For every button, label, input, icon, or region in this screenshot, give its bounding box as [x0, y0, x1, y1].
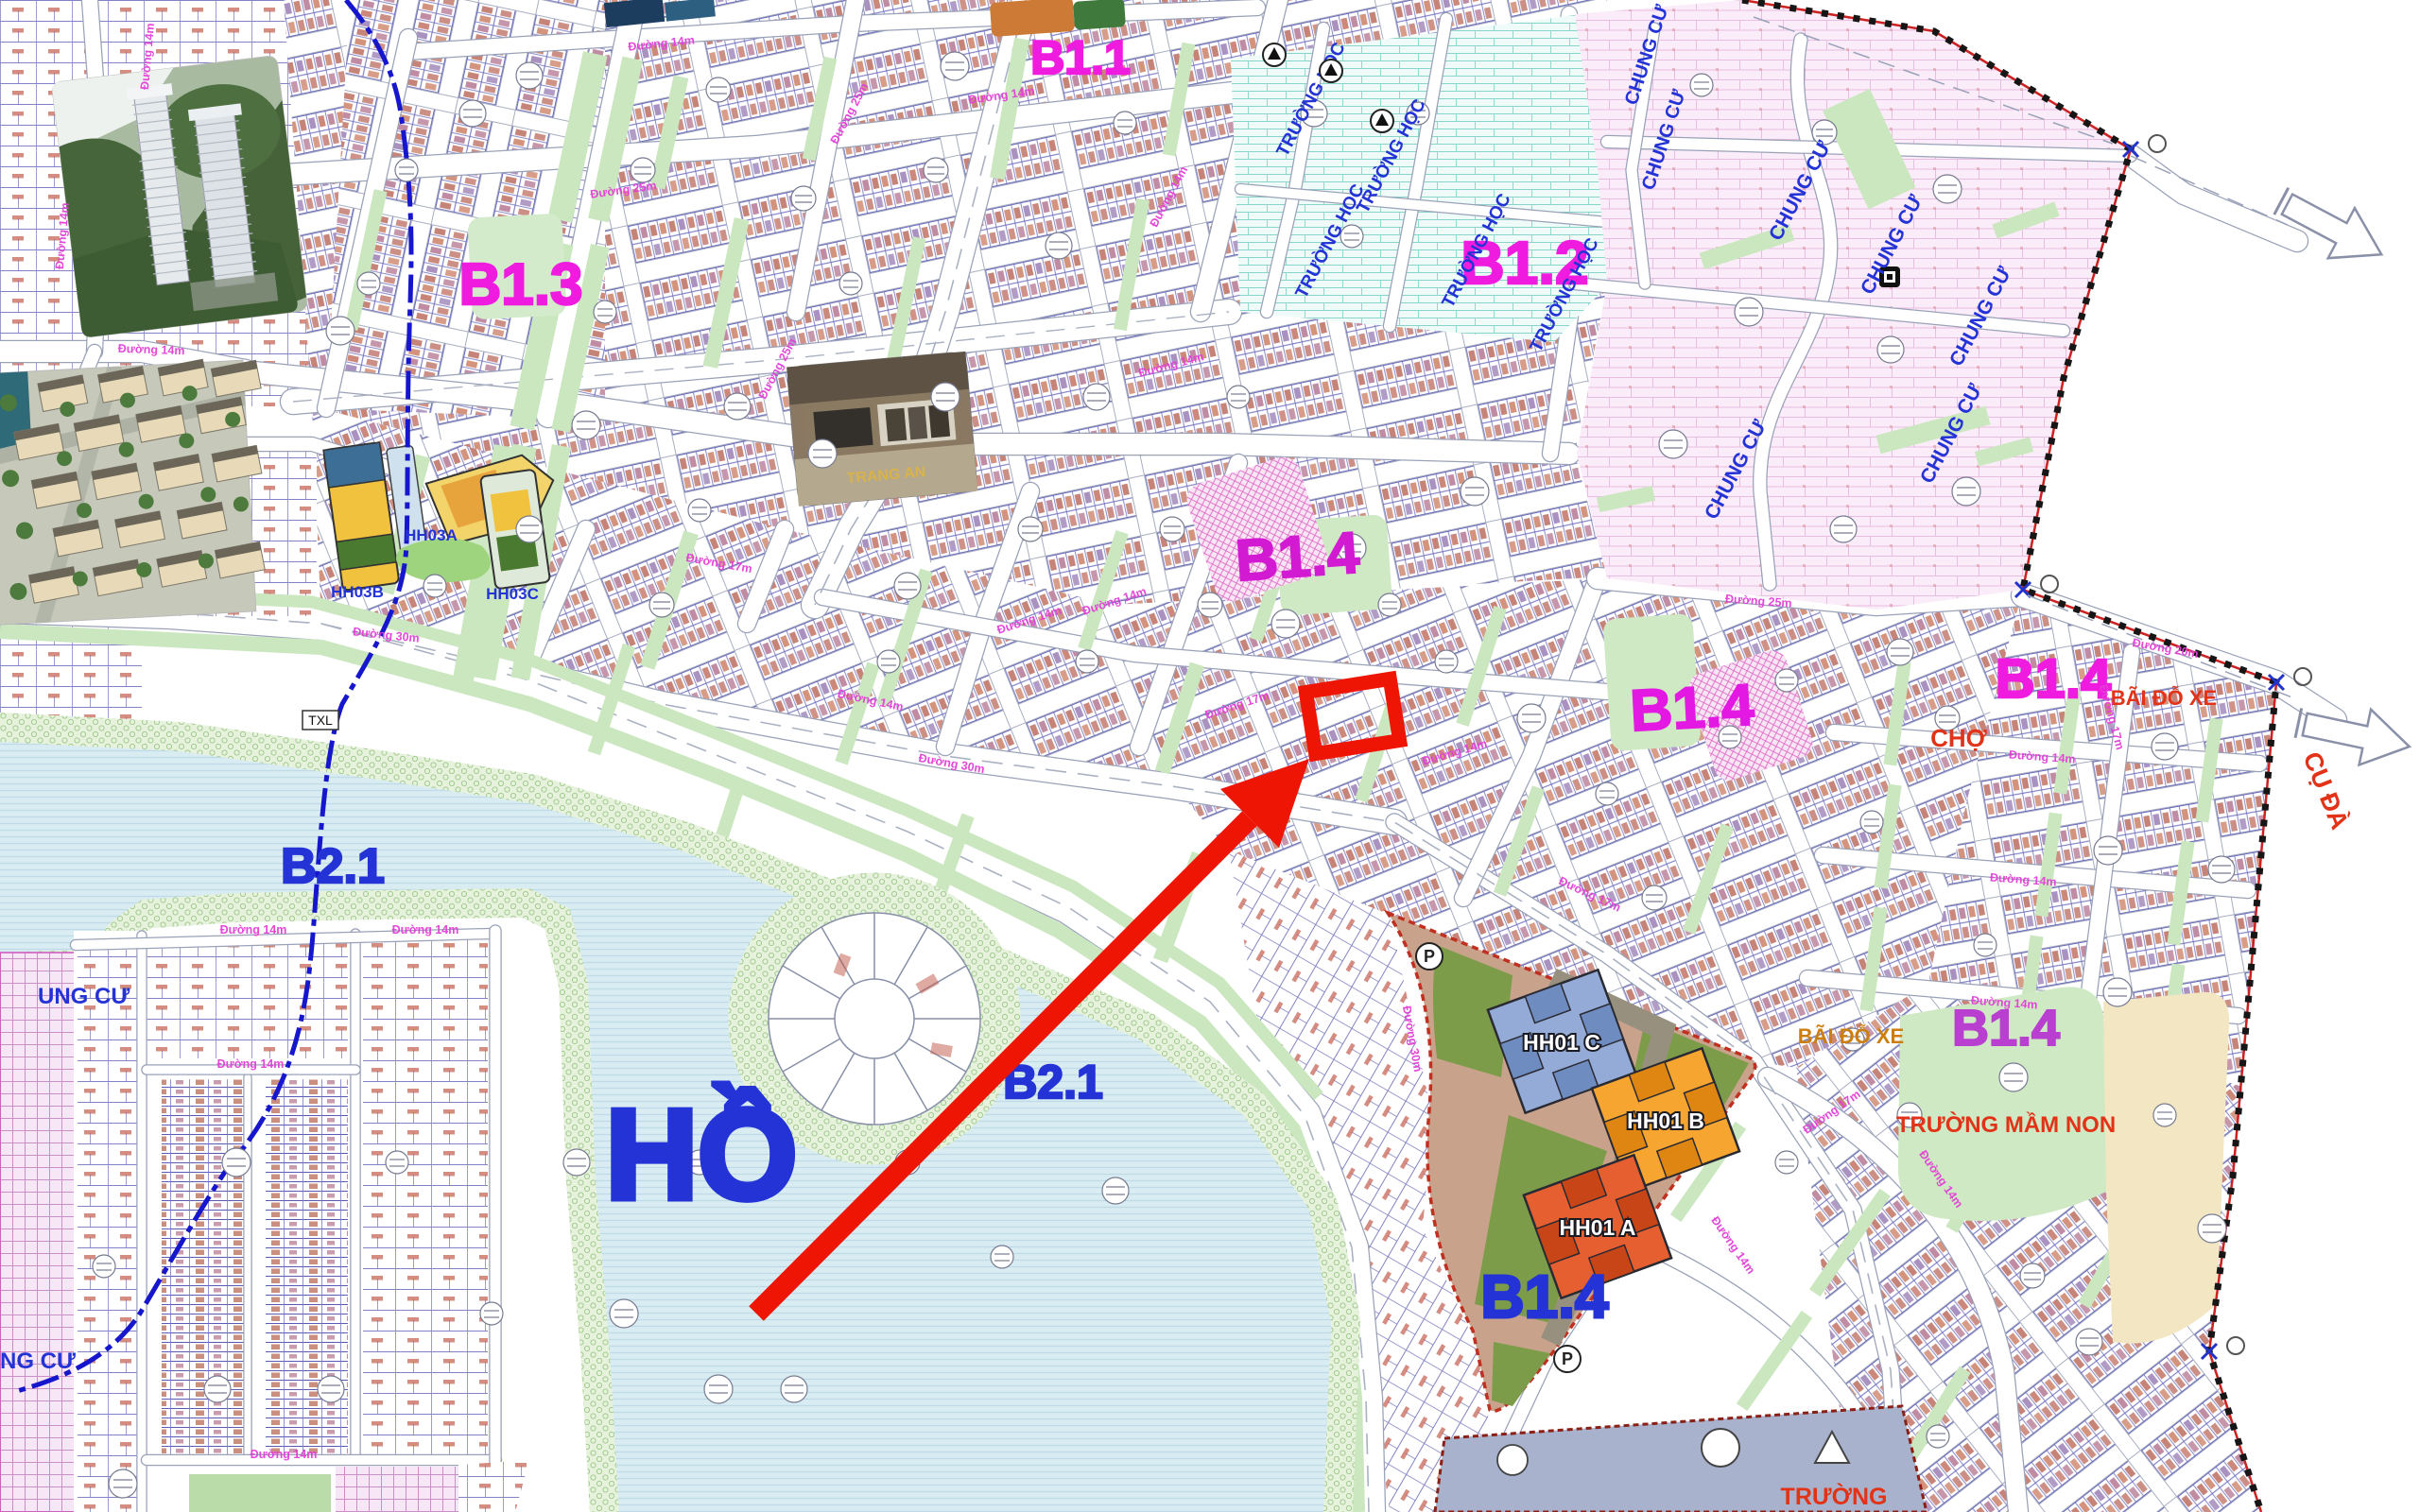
- svg-text:B1.4: B1.4: [1234, 521, 1362, 594]
- svg-text:B2.1: B2.1: [281, 839, 385, 894]
- svg-text:B1.4: B1.4: [1996, 648, 2112, 710]
- svg-text:Đường 14m: Đường 14m: [220, 923, 287, 936]
- svg-text:B1.1: B1.1: [1030, 31, 1131, 84]
- svg-text:B1.4: B1.4: [1480, 1263, 1609, 1331]
- svg-text:P: P: [1562, 1349, 1573, 1368]
- svg-text:NG CƯ: NG CƯ: [0, 1349, 76, 1374]
- svg-text:Đường 14m: Đường 14m: [217, 1057, 285, 1071]
- svg-text:HH03B: HH03B: [331, 583, 384, 601]
- svg-text:HH01 C: HH01 C: [1523, 1030, 1600, 1055]
- svg-text:TRƯỜNG: TRƯỜNG: [1781, 1482, 1888, 1510]
- svg-text:BÃI ĐỖ XE: BÃI ĐỖ XE: [2111, 685, 2217, 710]
- svg-text:B1.4: B1.4: [1629, 673, 1756, 745]
- svg-text:P: P: [1424, 947, 1435, 966]
- svg-text:CHỢ: CHỢ: [1930, 724, 1988, 752]
- svg-text:TRƯỜNG MẦM NON: TRƯỜNG MẦM NON: [1896, 1111, 2116, 1138]
- svg-text:UNG CƯ: UNG CƯ: [38, 984, 130, 1009]
- svg-text:HH03C: HH03C: [486, 585, 539, 603]
- svg-text:Đường 14m: Đường 14m: [392, 923, 459, 936]
- svg-text:HH01 B: HH01 B: [1627, 1108, 1704, 1133]
- svg-text:BÃI ĐỖ XE: BÃI ĐỖ XE: [1798, 1023, 1904, 1048]
- svg-text:TXL: TXL: [308, 713, 333, 728]
- svg-text:Đường 14m: Đường 14m: [118, 342, 185, 357]
- svg-text:HH03A: HH03A: [405, 526, 458, 544]
- svg-text:HH01 A: HH01 A: [1560, 1215, 1636, 1240]
- svg-text:HỒ: HỒ: [606, 1083, 798, 1226]
- svg-text:B1.3: B1.3: [459, 252, 583, 318]
- svg-text:Đường 14m: Đường 14m: [251, 1448, 318, 1461]
